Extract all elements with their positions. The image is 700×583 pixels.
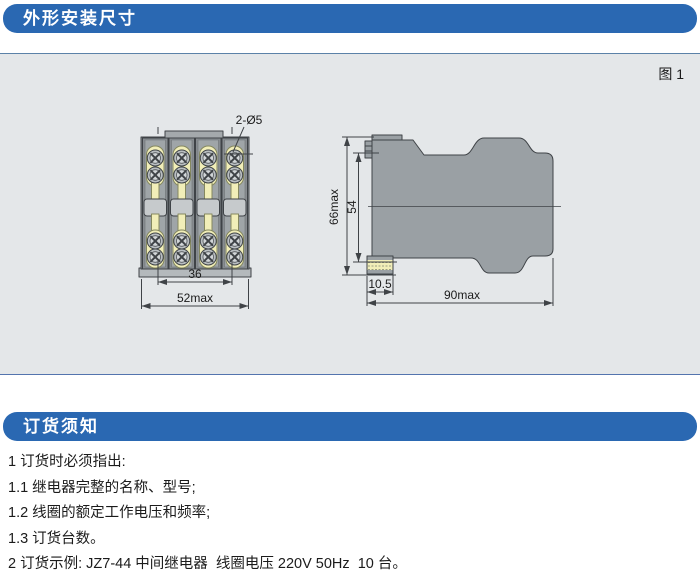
dim-66max-label: 66max (327, 189, 341, 225)
terminal-column (196, 138, 222, 269)
note-line: 1 订货时必须指出: (8, 455, 692, 470)
ordering-notes: 1 订货时必须指出: 1.1 继电器完整的名称、型号; 1.2 线圈的额定工作电… (0, 441, 700, 572)
dim-54-label: 54 (345, 200, 359, 214)
side-body (372, 138, 553, 273)
section-header-dimensions: 外形安装尺寸 (3, 4, 697, 33)
figure-panel: 图 1 (0, 53, 700, 375)
section-header-ordering: 订货须知 (3, 412, 697, 441)
front-view: 2-Ø5 36 52max (139, 113, 263, 309)
terminal-column (169, 138, 195, 269)
note-line: 2 订货示例: JZ7-44 中间继电器 线圈电压 220V 50Hz 10 台… (8, 557, 692, 572)
note-line: 1.2 线圈的额定工作电压和频率; (8, 506, 692, 521)
dim-36-label: 36 (188, 267, 202, 281)
dimension-drawing: 2-Ø5 36 52max (0, 54, 700, 374)
terminal-column (222, 138, 248, 269)
dim-90max-label: 90max (444, 288, 480, 302)
note-line: 1.1 继电器完整的名称、型号; (8, 481, 692, 496)
dim-52max-label: 52max (177, 291, 213, 305)
dim-105-label: 10.5 (368, 277, 392, 291)
terminal-column (143, 138, 169, 269)
dim-hole-label: 2-Ø5 (236, 113, 263, 127)
side-terminal-block (367, 256, 393, 274)
note-line: 1.3 订货台数。 (8, 532, 692, 547)
front-top-cap (165, 131, 223, 138)
side-top-plate (372, 135, 402, 140)
side-view: 66max 54 10.5 90max (327, 135, 561, 306)
